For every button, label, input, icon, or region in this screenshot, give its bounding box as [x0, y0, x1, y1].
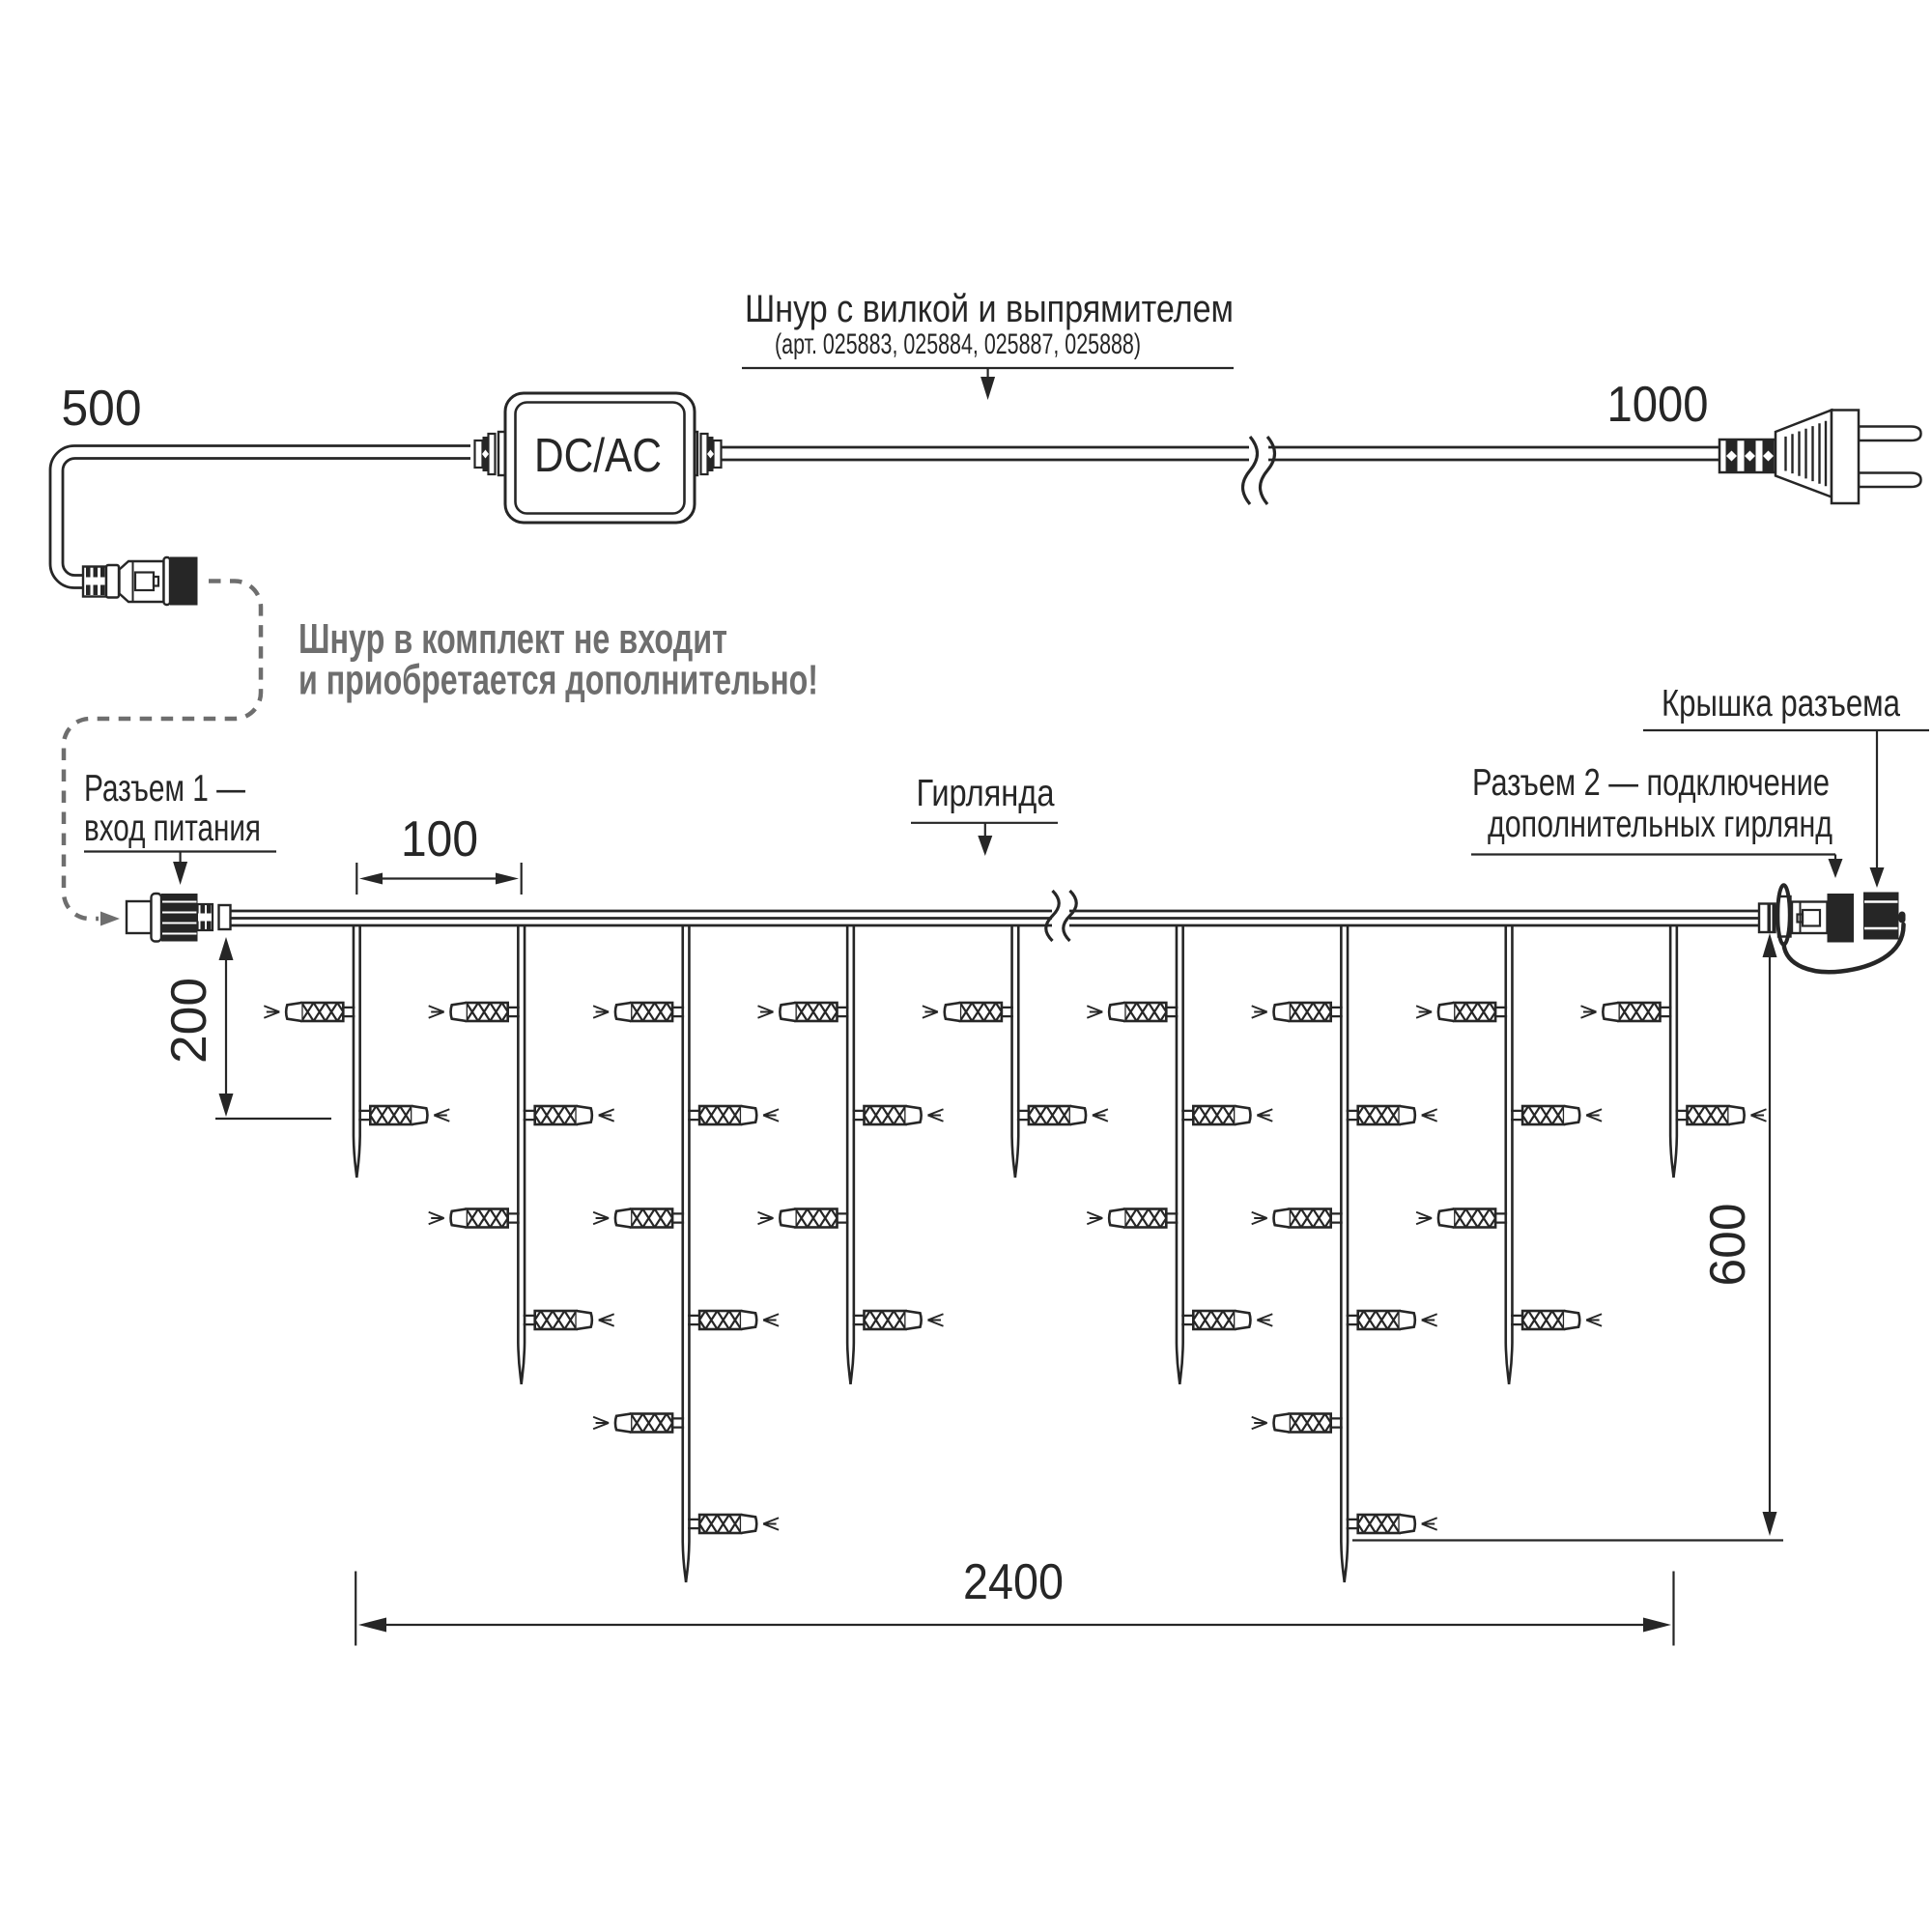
svg-text:100: 100 — [401, 811, 478, 867]
svg-text:Шнур с вилкой и выпрямителем: Шнур с вилкой и выпрямителем — [745, 288, 1234, 330]
svg-text:600: 600 — [1700, 1204, 1756, 1287]
svg-text:DC/AC: DC/AC — [534, 430, 662, 482]
svg-text:2400: 2400 — [963, 1554, 1064, 1610]
svg-text:и приобретается дополнительно!: и приобретается дополнительно! — [298, 657, 818, 704]
svg-text:Разъем 2 — подключение: Разъем 2 — подключение — [1472, 762, 1830, 804]
svg-text:(арт. 025883, 025884, 025887,: (арт. 025883, 025884, 025887, 025888) — [775, 328, 1141, 360]
svg-text:Разъем 1 —: Разъем 1 — — [84, 768, 245, 810]
svg-text:вход питания: вход питания — [84, 808, 261, 849]
svg-text:Гирлянда: Гирлянда — [917, 773, 1055, 814]
svg-text:дополнительных гирлянд: дополнительных гирлянд — [1488, 804, 1833, 845]
svg-text:1000: 1000 — [1607, 377, 1709, 433]
svg-text:200: 200 — [161, 978, 217, 1064]
svg-text:Крышка разъема: Крышка разъема — [1662, 683, 1900, 724]
svg-text:500: 500 — [62, 381, 142, 437]
